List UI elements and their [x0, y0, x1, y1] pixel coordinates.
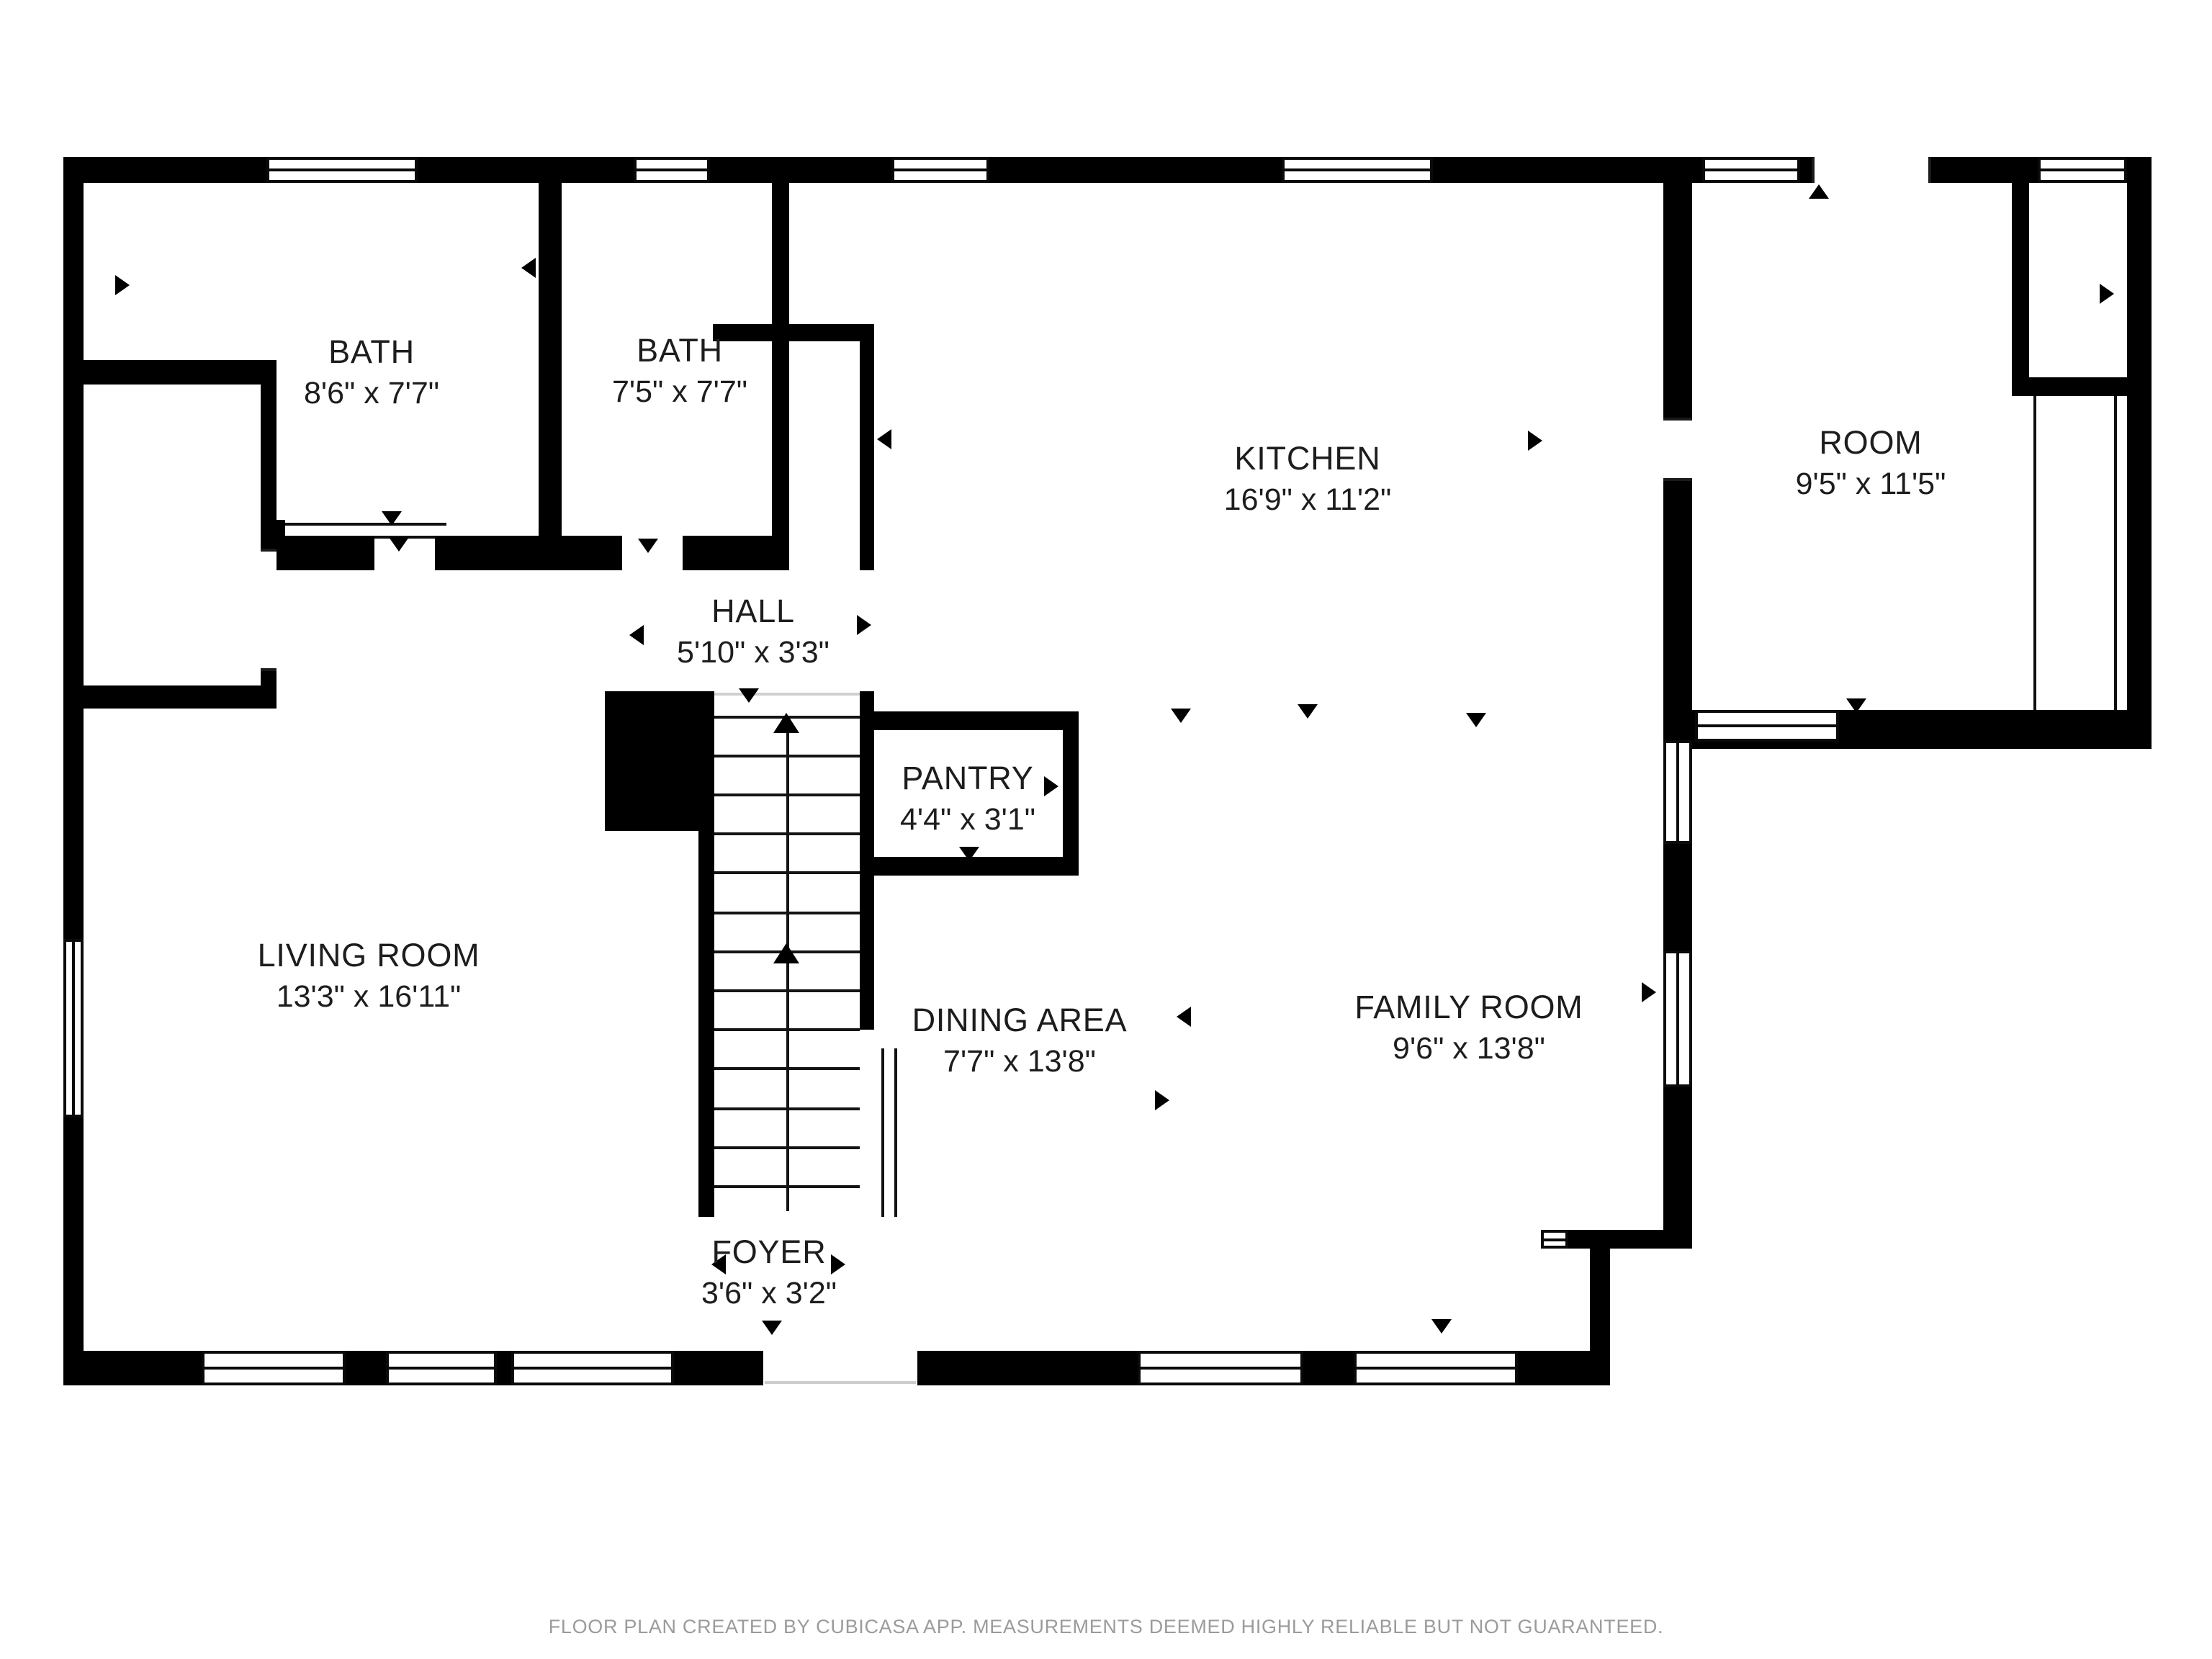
room-label-living-room: LIVING ROOM 13'3" x 16'11" — [258, 938, 480, 1015]
room-dims: 5'10" x 3'3" — [677, 635, 829, 671]
door-marker-left-icon — [629, 625, 644, 645]
footer-disclaimer: FLOOR PLAN CREATED BY CUBICASA APP. MEAS… — [0, 1616, 2212, 1637]
door-marker-right-icon — [1528, 431, 1542, 451]
window-bottom-dining-icon — [1138, 1351, 1303, 1385]
window-kitchen-east-icon — [1663, 740, 1692, 844]
room-label-foyer: FOYER 3'6" x 3'2" — [701, 1234, 837, 1312]
line-living-open-top — [285, 523, 446, 526]
door-marker-right-icon — [1642, 982, 1656, 1002]
stair-run-divider — [786, 716, 789, 1211]
line-hall-stairs-threshold — [714, 693, 860, 696]
wall-bath-divider — [539, 183, 562, 570]
door-marker-down-icon — [739, 688, 759, 703]
door-marker-up-icon — [1809, 184, 1829, 199]
room-label-pantry: PANTRY 4'4" x 3'1" — [900, 760, 1035, 838]
window-top-kitchen-icon — [1282, 157, 1433, 183]
room-name: FAMILY ROOM — [1354, 989, 1583, 1027]
wall-bath1-bottom-right — [435, 536, 562, 570]
window-se-jog-icon — [1541, 1230, 1568, 1249]
window-top-room-east-icon — [2038, 157, 2127, 183]
wall-bath2-bottom-left — [562, 536, 622, 570]
room-dims: 9'6" x 13'8" — [1354, 1031, 1583, 1067]
wall-niche-east — [860, 324, 874, 570]
room-dims: 3'6" x 3'2" — [701, 1276, 837, 1312]
room-dims: 7'7" x 13'8" — [912, 1044, 1128, 1080]
line-foyer-east-2 — [894, 1048, 897, 1217]
room-label-bath-2: BATH 7'5" x 7'7" — [612, 333, 747, 410]
door-marker-right-icon — [857, 615, 871, 635]
window-top-room-west-icon — [1702, 157, 1800, 183]
line-entry-threshold — [765, 1381, 916, 1384]
door-marker-right-icon — [1155, 1090, 1169, 1110]
wall-pantry-east — [1063, 711, 1079, 876]
room-label-hall: HALL 5'10" x 3'3" — [677, 593, 829, 671]
stairs — [714, 710, 860, 1217]
wall-bath1-bottom-left — [268, 536, 374, 570]
room-name: LIVING ROOM — [258, 938, 480, 975]
room-label-family-room: FAMILY ROOM 9'6" x 13'8" — [1354, 989, 1583, 1067]
window-bottom-living-1-icon — [202, 1351, 346, 1385]
floor-plan-page: BATH 8'6" x 7'7" BATH 7'5" x 7'7" KITCHE… — [0, 0, 2212, 1659]
room-label-bath-1: BATH 8'6" x 7'7" — [304, 334, 439, 412]
door-marker-left-icon — [521, 258, 536, 278]
window-living-west-icon — [63, 939, 84, 1118]
room-dims: 13'3" x 16'11" — [258, 979, 480, 1015]
window-bottom-living-3-icon — [511, 1351, 674, 1385]
door-marker-down-icon — [389, 537, 409, 552]
door-marker-down-icon — [1298, 704, 1318, 719]
door-marker-down-icon — [1846, 698, 1866, 713]
door-marker-left-icon — [877, 429, 891, 449]
wall-closet-top — [63, 360, 276, 385]
room-name: KITCHEN — [1224, 441, 1392, 478]
window-bottom-family-icon — [1354, 1351, 1518, 1385]
wall-stair-block — [605, 691, 714, 831]
door-marker-down-icon — [1466, 713, 1486, 727]
room-label-dining-area: DINING AREA 7'7" x 13'8" — [912, 1002, 1128, 1080]
door-marker-down-icon — [638, 539, 658, 553]
door-marker-down-icon — [1171, 709, 1191, 723]
room-name: FOYER — [701, 1234, 837, 1272]
room-label-room: ROOM 9'5" x 11'5" — [1796, 425, 1946, 503]
stairs-up-arrow-icon — [773, 943, 799, 963]
wall-room-east — [2012, 183, 2029, 396]
window-bottom-living-2-icon — [386, 1351, 497, 1385]
wall-kitchen-room-upper — [1663, 183, 1692, 418]
stairs-up-arrow-icon — [773, 713, 799, 733]
room-name: BATH — [612, 333, 747, 370]
door-marker-right-icon — [1044, 776, 1058, 796]
room-name: DINING AREA — [912, 1002, 1128, 1040]
room-name: BATH — [304, 334, 439, 372]
room-dims: 8'6" x 7'7" — [304, 376, 439, 412]
room-dims: 7'5" x 7'7" — [612, 374, 747, 410]
wall-right-outer — [2127, 157, 2152, 749]
room-dims: 9'5" x 11'5" — [1796, 467, 1946, 503]
door-marker-down-icon — [1431, 1319, 1452, 1334]
room-dims: 4'4" x 3'1" — [900, 802, 1035, 838]
wall-pantry-top — [860, 711, 1079, 730]
door-marker-right-icon — [115, 275, 130, 295]
window-top-bath2-west-icon — [634, 157, 710, 183]
wall-closet2-top — [2018, 377, 2127, 396]
room-name: PANTRY — [900, 760, 1035, 798]
window-room-south-icon — [1695, 710, 1839, 742]
window-family-east-icon — [1663, 950, 1692, 1087]
line-foyer-east-1 — [881, 1048, 884, 1217]
wall-family-se — [1590, 1249, 1610, 1385]
wall-left — [63, 157, 84, 1385]
wall-kitchen-room-lower — [1663, 478, 1692, 1247]
door-marker-down-icon — [762, 1321, 782, 1335]
door-marker-down-icon — [382, 511, 402, 526]
wall-closet-stub — [261, 520, 285, 537]
door-marker-left-icon — [1177, 1007, 1191, 1027]
door-marker-right-icon — [2100, 284, 2114, 304]
room-name: ROOM — [1796, 425, 1946, 462]
wall-bath2-east — [772, 183, 789, 570]
wall-closet-bottom — [84, 685, 276, 709]
window-top-bath1-icon — [266, 157, 418, 183]
wall-se-jog — [1568, 1230, 1692, 1249]
door-marker-down-icon — [959, 847, 979, 861]
opening-closet-door — [261, 549, 276, 671]
room-name: HALL — [677, 593, 829, 631]
floor-plan: BATH 8'6" x 7'7" BATH 7'5" x 7'7" KITCHE… — [0, 0, 2212, 1659]
room-label-kitchen: KITCHEN 16'9" x 11'2" — [1224, 441, 1392, 518]
window-top-bath2-east-icon — [891, 157, 989, 183]
opening-exterior-door — [1812, 157, 1931, 183]
closet-casework-icon — [2033, 390, 2117, 720]
opening-room-door — [1663, 418, 1692, 481]
wall-stair-west — [698, 831, 714, 1217]
room-dims: 16'9" x 11'2" — [1224, 482, 1392, 518]
